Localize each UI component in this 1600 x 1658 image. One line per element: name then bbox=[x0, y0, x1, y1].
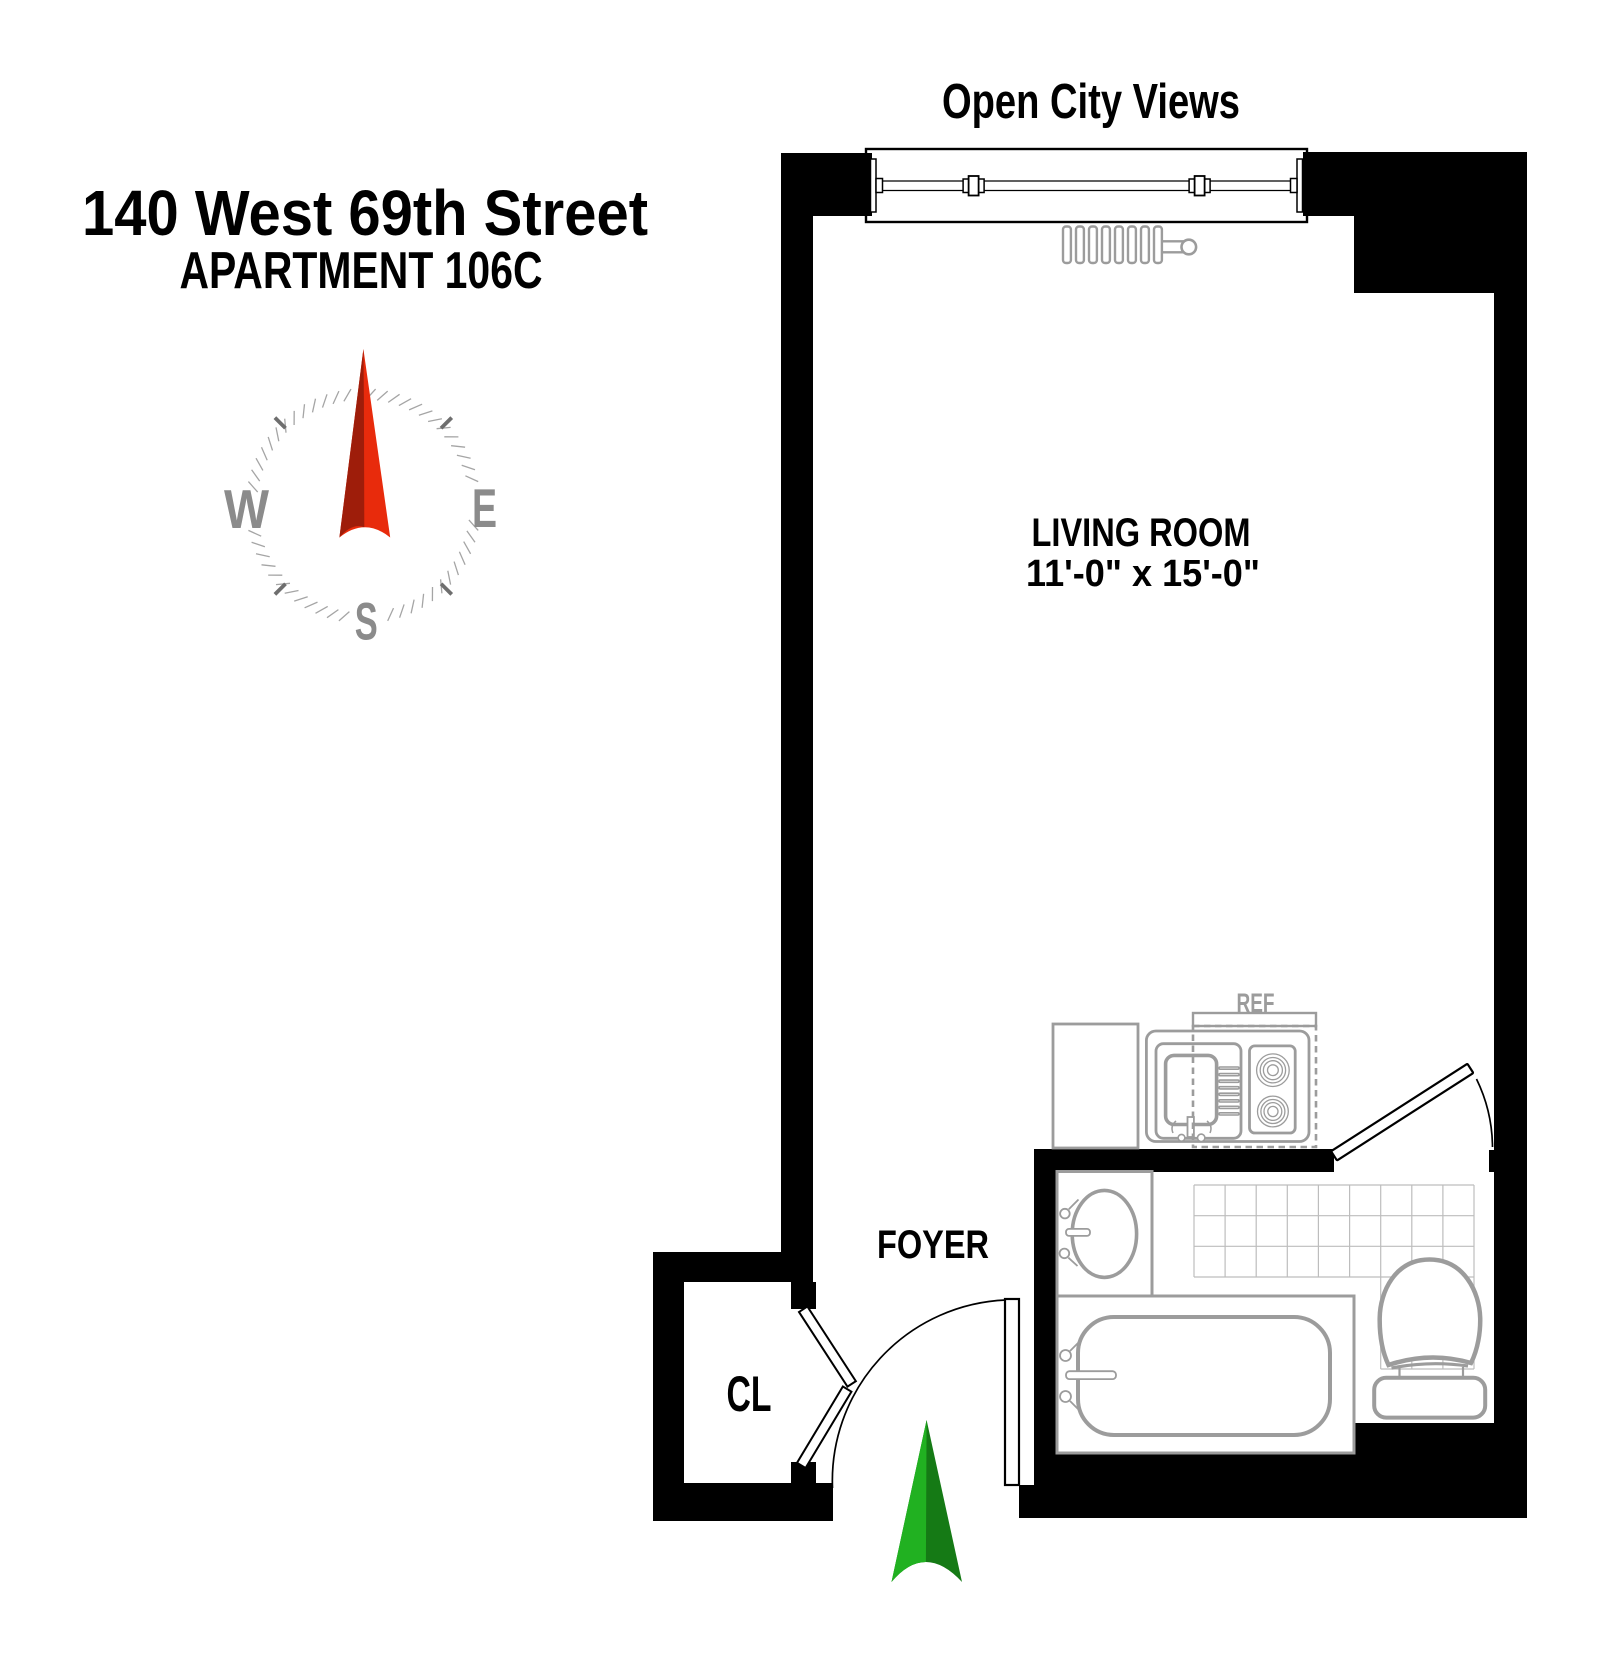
svg-text:Open City Views: Open City Views bbox=[942, 75, 1240, 129]
svg-text:11'-0" x 15'-0": 11'-0" x 15'-0" bbox=[1026, 553, 1260, 595]
svg-text:LIVING ROOM: LIVING ROOM bbox=[1032, 511, 1251, 555]
svg-text:140 West 69th Street: 140 West 69th Street bbox=[82, 177, 648, 249]
svg-text:E: E bbox=[472, 477, 497, 539]
svg-text:W: W bbox=[224, 478, 269, 540]
svg-text:S: S bbox=[355, 593, 378, 652]
svg-text:CL: CL bbox=[727, 1366, 772, 1422]
svg-text:APARTMENT 106C: APARTMENT 106C bbox=[180, 242, 543, 300]
svg-text:FOYER: FOYER bbox=[877, 1223, 989, 1267]
